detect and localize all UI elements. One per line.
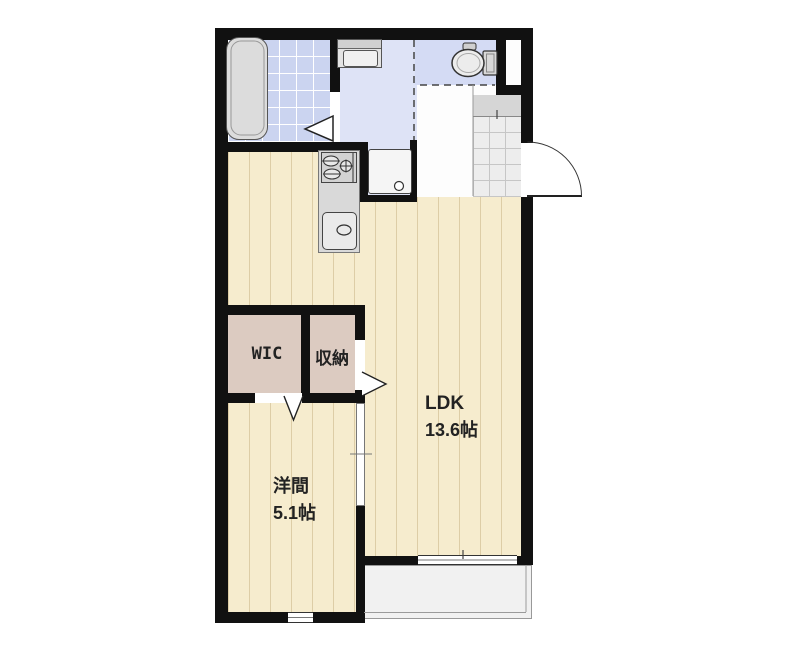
vanity-counter-band [338,40,381,49]
bath-door-gap [330,92,340,142]
floor-plan: LDK 13.6帖 洋間 5.1帖 WIC 収納 [0,0,800,651]
wall-right-lower [521,197,533,565]
ldk-area: 13.6帖 [425,417,478,443]
ldk-window [418,555,517,565]
wic-label: WIC [233,344,301,364]
wall-closet-bottom [496,85,533,95]
wall-counter-pan [360,142,368,202]
wall-wic-top [215,305,365,315]
wall-ldk-bottom-stub [516,556,533,565]
storage-door-gap [355,340,365,390]
genkan-step [473,95,521,118]
balcony [364,565,532,619]
entry-closet [506,40,521,85]
vanity-bowl [343,50,378,67]
hallway-strip [473,85,496,95]
yoma-label: 洋間 5.1帖 [273,473,316,527]
yoma-name: 洋間 [273,473,316,500]
toilet-floor [415,40,496,85]
entrance-door-icon [527,142,582,196]
wall-ldk-bottom [358,556,420,565]
ldk-label: LDK 13.6帖 [425,391,478,443]
hallway-floor [417,85,473,197]
wall-pan-bottom [360,195,417,202]
kitchen-sink [322,212,357,250]
kitchen-stove [321,152,357,183]
ldk-name: LDK [425,391,478,417]
yoma-area: 5.1帖 [273,500,316,527]
storage-label: 収納 [308,344,356,369]
yoma-window [288,612,313,623]
washing-machine-pan [368,149,412,194]
wic-door-gap [255,393,302,403]
genkan-tile [473,117,521,197]
bathtub [226,37,268,140]
sliding-door [356,403,365,506]
